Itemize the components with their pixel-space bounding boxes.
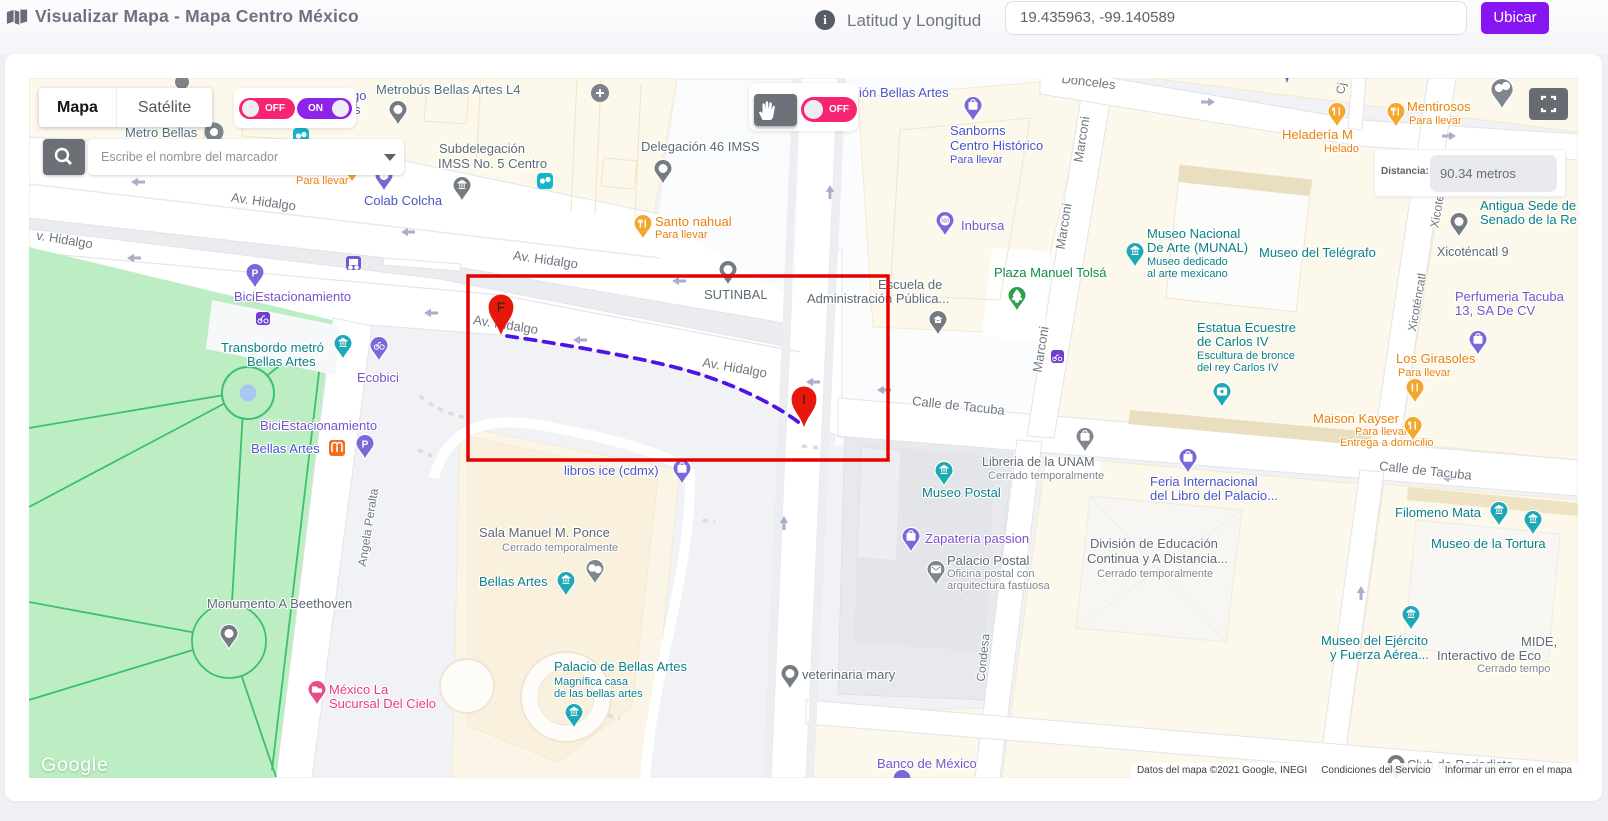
svg-text:I: I	[802, 391, 806, 407]
svg-text:Cj: Cj	[1333, 82, 1349, 96]
svg-text:P: P	[362, 440, 369, 451]
svg-text:Bellas Artes: Bellas Artes	[479, 574, 548, 589]
svg-text:Estatua Ecuestre: Estatua Ecuestre	[1197, 320, 1296, 335]
svg-text:Mentirosos: Mentirosos	[1407, 99, 1471, 114]
svg-text:Museo Nacional: Museo Nacional	[1147, 226, 1240, 241]
svg-text:Delegación 46 IMSS: Delegación 46 IMSS	[641, 139, 760, 154]
svg-text:Maison Kayser: Maison Kayser	[1313, 411, 1400, 426]
svg-text:Los Girasoles: Los Girasoles	[1396, 351, 1476, 366]
svg-text:de las bellas artes: de las bellas artes	[554, 688, 643, 700]
svg-text:ión Bellas Artes: ión Bellas Artes	[859, 85, 949, 100]
svg-text:del Libro del Palacio...: del Libro del Palacio...	[1150, 488, 1278, 503]
svg-text:Sanborns: Sanborns	[950, 123, 1006, 138]
svg-text:Para llevar: Para llevar	[296, 175, 349, 187]
svg-text:Magnífica casa: Magnífica casa	[554, 676, 629, 688]
svg-text:De Arte (MUNAL): De Arte (MUNAL)	[1147, 240, 1248, 255]
svg-text:Ecobici: Ecobici	[357, 370, 399, 385]
svg-text:Perfumeria Tacuba: Perfumeria Tacuba	[1455, 289, 1565, 304]
svg-text:Museo dedicado: Museo dedicado	[1147, 256, 1228, 268]
svg-text:Interactivo de Eco: Interactivo de Eco	[1437, 648, 1541, 663]
svg-text:Continua y A Distancia...: Continua y A Distancia...	[1087, 551, 1228, 566]
svg-text:Plaza Manuel Tolsá: Plaza Manuel Tolsá	[994, 265, 1107, 280]
svg-text:SUTINBAL: SUTINBAL	[704, 287, 768, 302]
svg-text:Subdelegación: Subdelegación	[439, 141, 525, 156]
svg-text:Inbursa: Inbursa	[961, 218, 1005, 233]
svg-text:Para llevar: Para llevar	[1398, 367, 1451, 379]
svg-text:México La: México La	[329, 682, 389, 697]
svg-text:Heladería M: Heladería M	[1282, 127, 1353, 142]
svg-text:Libreria de la UNAM: Libreria de la UNAM	[982, 455, 1095, 469]
svg-text:Para llevar: Para llevar	[1409, 115, 1462, 127]
svg-text:y Fuerza Aérea...: y Fuerza Aérea...	[1330, 647, 1429, 662]
svg-text:Metro Bellas: Metro Bellas	[125, 125, 198, 140]
svg-text:Sala Manuel M. Ponce: Sala Manuel M. Ponce	[479, 525, 610, 540]
svg-text:13, SA De CV: 13, SA De CV	[1455, 303, 1536, 318]
svg-text:arquitectura fastuosa: arquitectura fastuosa	[947, 580, 1051, 592]
svg-text:División de Educación: División de Educación	[1090, 536, 1218, 551]
svg-text:Zapatería passion: Zapatería passion	[925, 531, 1029, 546]
svg-text:Santo nahual: Santo nahual	[655, 214, 732, 229]
svg-text:Administración Pública...: Administración Pública...	[807, 291, 949, 306]
svg-text:MIDE,: MIDE,	[1521, 634, 1557, 649]
svg-text:Centro Histórico: Centro Histórico	[950, 138, 1043, 153]
svg-text:Xicoténcatl 9: Xicoténcatl 9	[1437, 245, 1509, 259]
svg-text:Cerrado temporalmente: Cerrado temporalmente	[988, 470, 1104, 482]
svg-text:Helado: Helado	[1324, 143, 1359, 155]
svg-text:Bellas Artes: Bellas Artes	[247, 354, 316, 369]
svg-text:Cerrado tempo: Cerrado tempo	[1477, 663, 1550, 675]
svg-text:Para llevar: Para llevar	[950, 154, 1003, 166]
svg-text:al arte mexicano: al arte mexicano	[1147, 268, 1228, 280]
svg-text:veterinaria mary: veterinaria mary	[802, 667, 896, 682]
svg-text:300: 300	[941, 219, 950, 225]
svg-text:Sucursal Del Cielo: Sucursal Del Cielo	[329, 696, 436, 711]
svg-text:Para llevar: Para llevar	[655, 229, 708, 241]
svg-text:Museo del Telégrafo: Museo del Telégrafo	[1259, 245, 1376, 260]
svg-text:BiciEstacionamiento: BiciEstacionamiento	[234, 289, 351, 304]
svg-text:del rey Carlos IV: del rey Carlos IV	[1197, 362, 1279, 374]
svg-text:F: F	[497, 299, 506, 315]
svg-text:Museo Postal: Museo Postal	[922, 485, 1001, 500]
svg-text:Palacio de Bellas Artes: Palacio de Bellas Artes	[554, 659, 687, 674]
svg-text:Senado de la Re: Senado de la Re	[1480, 212, 1577, 227]
svg-text:Feria Internacional: Feria Internacional	[1150, 474, 1258, 489]
svg-text:Cerrado temporalmente: Cerrado temporalmente	[502, 542, 618, 554]
svg-text:Colab Colcha: Colab Colcha	[364, 193, 443, 208]
svg-text:Filomeno Mata: Filomeno Mata	[1395, 505, 1482, 520]
svg-text:Museo de la Tortura: Museo de la Tortura	[1431, 536, 1546, 551]
svg-text:IMSS No. 5 Centro: IMSS No. 5 Centro	[438, 156, 547, 171]
svg-text:BiciEstacionamiento: BiciEstacionamiento	[260, 418, 377, 433]
svg-text:Escultura de bronce: Escultura de bronce	[1197, 350, 1295, 362]
svg-text:Monumento A Beethoven: Monumento A Beethoven	[207, 596, 352, 611]
svg-text:Entrega a domicilio: Entrega a domicilio	[1340, 437, 1434, 449]
svg-text:de Carlos IV: de Carlos IV	[1197, 334, 1269, 349]
svg-text:Cerrado temporalmente: Cerrado temporalmente	[1097, 568, 1213, 580]
svg-text:Banco de México: Banco de México	[877, 756, 977, 771]
svg-text:Palacio Postal: Palacio Postal	[947, 553, 1029, 568]
svg-text:Transbordo metró: Transbordo metró	[221, 340, 324, 355]
svg-text:Antigua Sede de: Antigua Sede de	[1480, 198, 1576, 213]
svg-text:Museo del Ejército: Museo del Ejército	[1321, 633, 1428, 648]
svg-text:Oficina postal con: Oficina postal con	[947, 568, 1034, 580]
svg-text:Bellas Artes: Bellas Artes	[251, 441, 320, 456]
svg-text:P: P	[252, 269, 259, 280]
svg-text:libros ice (cdmx): libros ice (cdmx)	[564, 463, 659, 478]
svg-text:Metrobús Bellas Artes L4: Metrobús Bellas Artes L4	[376, 82, 521, 97]
